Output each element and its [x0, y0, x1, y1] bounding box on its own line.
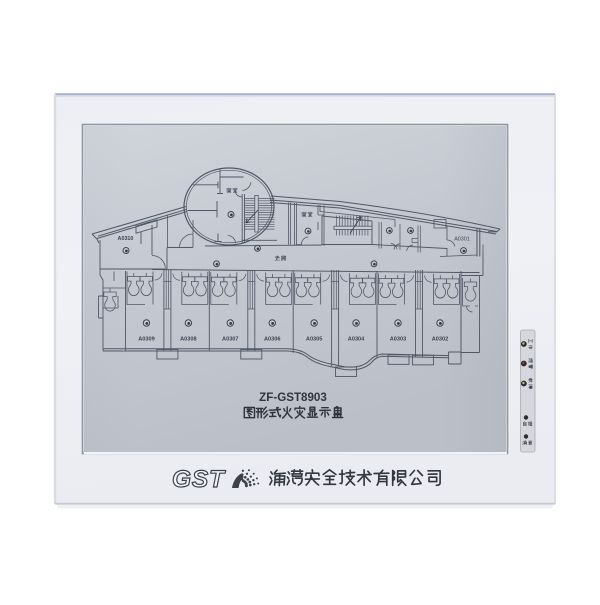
svg-text:ZF-GST8903: ZF-GST8903 — [259, 391, 327, 404]
svg-text:A0309: A0309 — [138, 337, 154, 343]
svg-text:A0305: A0305 — [306, 337, 322, 343]
svg-text:A0302: A0302 — [432, 337, 448, 343]
svg-text:A0307: A0307 — [222, 337, 238, 343]
svg-text:A0301: A0301 — [454, 237, 470, 243]
svg-text:GST: GST — [172, 466, 226, 493]
svg-text:A0308: A0308 — [180, 337, 196, 343]
svg-text:A0303: A0303 — [390, 337, 406, 343]
svg-text:A0306: A0306 — [264, 337, 280, 343]
svg-text:A0304: A0304 — [348, 337, 365, 343]
svg-text:A0310: A0310 — [118, 236, 134, 242]
